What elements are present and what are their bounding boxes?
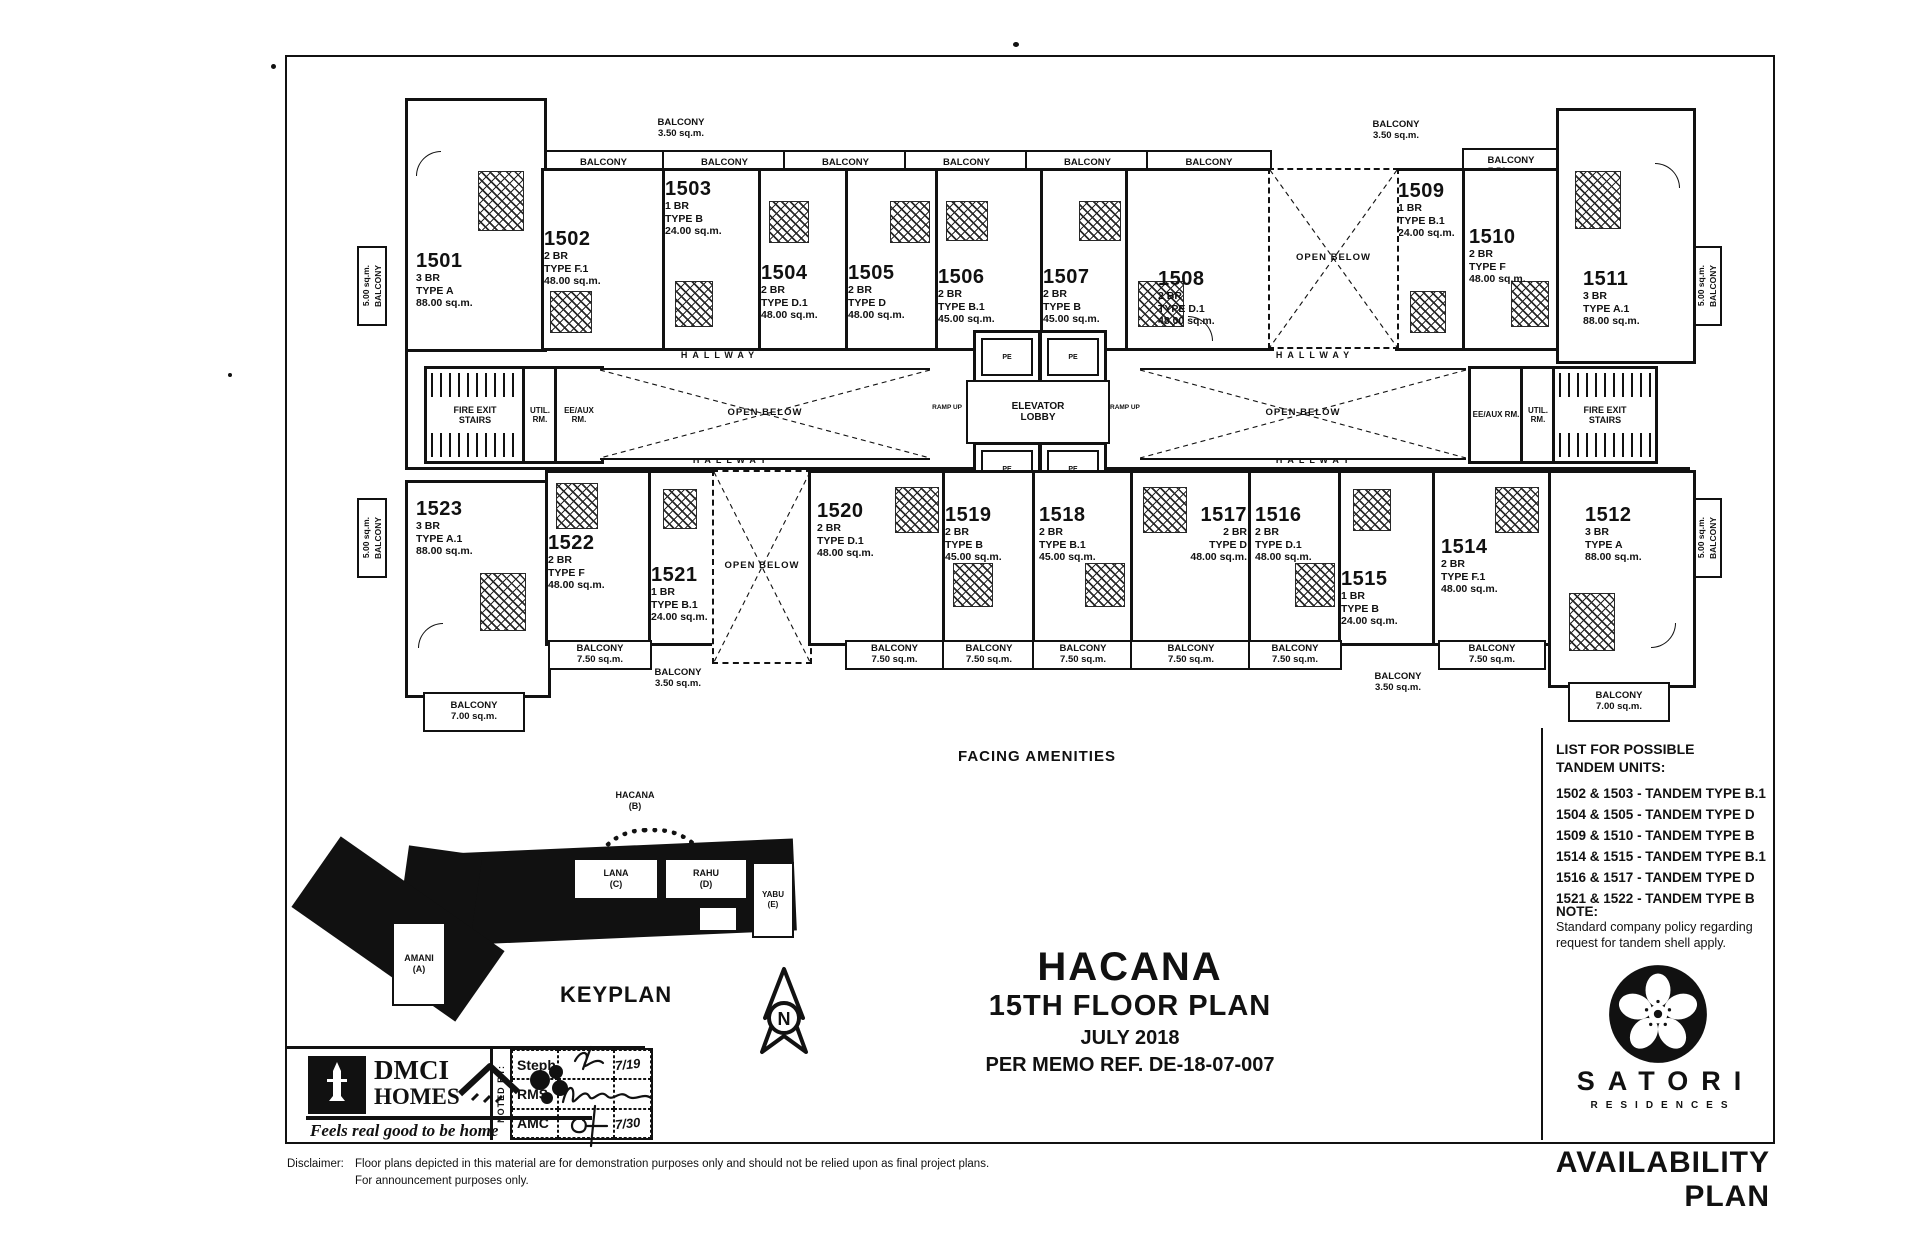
keyplan-building-lana: LANA (C)	[573, 858, 659, 900]
column-divider	[1541, 728, 1543, 1140]
unit-1518: 1518 2 BR TYPE B.1 45.00 sq.m.	[1032, 470, 1136, 646]
fixtures	[953, 563, 993, 607]
title-block: HACANA 15TH FLOOR PLAN JULY 2018 PER MEM…	[905, 946, 1355, 1079]
fixtures	[1511, 281, 1549, 327]
fixtures	[890, 201, 930, 243]
north-arrow-icon: N	[742, 966, 826, 1058]
unit-1521: 1521 1 BR TYPE B.1 24.00 sq.m.	[648, 470, 718, 646]
dmci-logo-mark	[308, 1056, 366, 1114]
note-block: NOTE: Standard company policy regarding …	[1556, 904, 1771, 952]
noted-by-table: Steph 7/19 RMS AMC 7/30	[510, 1048, 653, 1140]
door-arc	[418, 623, 443, 648]
stair-treads	[1559, 433, 1651, 457]
elevator-lobby: ELEVATOR LOBBY	[966, 380, 1110, 444]
tandem-list: LIST FOR POSSIBLE TANDEM UNITS: 1502 & 1…	[1556, 740, 1766, 910]
noted-by-signature	[558, 1050, 614, 1079]
west-wall	[405, 345, 408, 470]
tandem-item: 1504 & 1505 - TANDEM TYPE D	[1556, 805, 1766, 826]
keyplan-building-rahu: RAHU (D)	[664, 858, 748, 900]
tandem-heading: TANDEM UNITS:	[1556, 758, 1766, 776]
balcony-west: BALCONY5.00 sq.m.	[357, 246, 387, 326]
balcony-west: BALCONY5.00 sq.m.	[357, 498, 387, 578]
balcony-strip: BALCONY7.50 sq.m.	[1248, 640, 1342, 670]
fixtures	[1569, 593, 1615, 651]
fixtures	[550, 291, 592, 333]
scan-artifact-dot	[228, 373, 232, 377]
keyplan-building-amani: AMANI (A)	[392, 922, 446, 1006]
hallway-label: HALLWAY	[1255, 350, 1375, 360]
door-arc	[1651, 623, 1676, 648]
balcony-label: BALCONY3.50 sq.m.	[636, 666, 720, 692]
satori-flower-logo	[1606, 962, 1710, 1066]
fixtures	[675, 281, 713, 327]
door-arc	[416, 151, 441, 176]
tandem-item: 1514 & 1515 - TANDEM TYPE B.1	[1556, 847, 1766, 868]
open-below-corridor-west: OPEN BELOW	[600, 368, 930, 460]
fixtures	[946, 201, 988, 241]
balcony-1512: BALCONY7.00 sq.m.	[1568, 682, 1670, 722]
north-letter: N	[778, 1009, 791, 1029]
fixtures	[1079, 201, 1121, 241]
unit-1512: 1512 3 BR TYPE A 88.00 sq.m.	[1548, 470, 1696, 688]
balcony-east: BALCONY5.00 sq.m.	[1692, 246, 1722, 326]
fixtures	[1495, 487, 1539, 533]
balcony-strip: BALCONY7.50 sq.m.	[845, 640, 944, 670]
scanned-floor-plan-sheet: { "doc": { "availability": "AVAILABILITY…	[0, 0, 1920, 1255]
stair-treads	[431, 373, 519, 397]
unit-1510: 1510 2 BR TYPE F 48.00 sq.m.	[1462, 168, 1562, 351]
unit-1522: 1522 2 BR TYPE F 48.00 sq.m.	[545, 470, 654, 646]
elevator-shaft: PE	[1039, 330, 1107, 384]
unit-1516: 1516 2 BR TYPE D.1 48.00 sq.m.	[1248, 470, 1344, 646]
fixtures	[663, 489, 697, 529]
fixtures	[1295, 563, 1335, 607]
floor-title: 15TH FLOOR PLAN	[905, 988, 1355, 1024]
disclaimer-label: Disclaimer:	[287, 1156, 357, 1173]
unit-1502: 1502 2 BR TYPE F.1 48.00 sq.m.	[541, 168, 668, 351]
util-room-east: UTIL. RM.	[1520, 366, 1556, 464]
tandem-heading: LIST FOR POSSIBLE	[1556, 740, 1766, 758]
fixtures	[1410, 291, 1446, 333]
noted-by-label: NOTED BY:	[493, 1050, 509, 1138]
unit-1509: 1509 1 BR TYPE B.1 24.00 sq.m.	[1395, 168, 1468, 351]
fixtures	[769, 201, 809, 243]
fire-exit-stairs-west: FIRE EXIT STAIRS	[424, 366, 526, 464]
fire-exit-stairs-east: FIRE EXIT STAIRS	[1552, 366, 1658, 464]
balcony-1523: BALCONY7.00 sq.m.	[423, 692, 525, 732]
elevator-car: PE	[981, 338, 1033, 376]
balcony-label: BALCONY3.50 sq.m.	[1360, 116, 1432, 146]
ramp-up-label: RAMP UP	[912, 404, 962, 411]
balcony-east: BALCONY5.00 sq.m.	[1692, 498, 1722, 578]
balcony-strip: BALCONY7.50 sq.m.	[942, 640, 1036, 670]
open-below-area: OPEN BELOW	[1268, 168, 1399, 349]
open-below-corridor-east: OPEN BELOW	[1140, 368, 1466, 460]
fixtures	[1575, 171, 1621, 229]
noted-by-date: 7/30	[614, 1109, 651, 1138]
balcony-label: BALCONY3.50 sq.m.	[1356, 670, 1440, 696]
balcony-strip: BALCONY7.50 sq.m.	[1130, 640, 1252, 670]
unit-1511: 1511 3 BR TYPE A.1 88.00 sq.m.	[1556, 108, 1696, 364]
fixtures	[478, 171, 524, 231]
disclaimer-text: Floor plans depicted in this material ar…	[355, 1156, 1275, 1191]
elevator-car: PE	[1047, 338, 1099, 376]
unit-1514: 1514 2 BR TYPE F.1 48.00 sq.m.	[1432, 470, 1554, 646]
unit-1503: 1503 1 BR TYPE B 24.00 sq.m.	[662, 168, 764, 351]
tandem-item: 1509 & 1510 - TANDEM TYPE B	[1556, 826, 1766, 847]
balcony-strip: BALCONY7.50 sq.m.	[1438, 640, 1546, 670]
dmci-wordmark: HOMES	[374, 1086, 460, 1108]
noted-by-name: Steph	[512, 1050, 558, 1079]
hallway-label: HALLWAY	[660, 350, 780, 360]
open-below-area: OPEN BELOW	[712, 470, 812, 664]
unit-1520: 1520 2 BR TYPE D.1 48.00 sq.m.	[808, 470, 948, 646]
unit-1515: 1515 1 BR TYPE B 24.00 sq.m.	[1338, 470, 1438, 646]
stair-treads	[1559, 373, 1651, 397]
dmci-obelisk-icon	[308, 1056, 366, 1114]
keyplan-hacana-label: HACANA (B)	[592, 790, 678, 813]
plan-date: JULY 2018	[905, 1024, 1355, 1052]
unit-1517: 1517 2 BR TYPE D 48.00 sq.m.	[1130, 470, 1254, 646]
balcony-strip: BALCONY7.50 sq.m.	[1032, 640, 1134, 670]
unit-1508: 1508 2 BR TYPE D.1 48.00 sq.m.	[1125, 168, 1274, 351]
unit-1507: 1507 2 BR TYPE B 45.00 sq.m.	[1040, 168, 1131, 351]
dmci-wordmark: DMCI	[374, 1058, 449, 1084]
door-arc	[1655, 163, 1680, 188]
ee-aux-room-west: EE/AUX RM.	[554, 366, 604, 464]
unit-1505: 1505 2 BR TYPE D 48.00 sq.m.	[845, 168, 941, 351]
ee-aux-room-east: EE/AUX RM.	[1468, 366, 1524, 464]
noted-by-name: AMC	[512, 1109, 558, 1138]
tandem-item: 1502 & 1503 - TANDEM TYPE B.1	[1556, 784, 1766, 805]
scan-artifact-dot	[1013, 42, 1019, 47]
stair-treads	[431, 433, 519, 457]
unit-1506: 1506 2 BR TYPE B.1 45.00 sq.m.	[935, 168, 1046, 351]
fixtures	[1353, 489, 1391, 531]
memo-reference: PER MEMO REF. DE-18-07-007	[905, 1052, 1355, 1079]
tandem-item: 1516 & 1517 - TANDEM TYPE D	[1556, 868, 1766, 889]
keyplan-amenity-box	[698, 906, 738, 932]
keyplan-title: KEYPLAN	[560, 982, 672, 1008]
elevator-shaft: PE	[973, 330, 1041, 384]
dmci-tagline: Feels real good to be home	[310, 1121, 498, 1141]
fixtures	[556, 483, 598, 529]
facing-amenities-label: FACING AMENITIES	[958, 748, 1116, 765]
noted-by-name: RMS	[512, 1079, 558, 1108]
fixtures	[1085, 563, 1125, 607]
unit-1501: 1501 3 BR TYPE A 88.00 sq.m.	[405, 98, 547, 352]
availability-plan-label: AVAILABILITY PLAN	[1490, 1146, 1770, 1214]
noted-by-signature	[558, 1109, 614, 1138]
noted-by-date: 7/19	[614, 1050, 651, 1079]
keyplan-building-yabu: YABU (E)	[752, 862, 794, 938]
unit-1523: 1523 3 BR TYPE A.1 88.00 sq.m.	[405, 480, 551, 698]
unit-1519: 1519 2 BR TYPE B 45.00 sq.m.	[942, 470, 1038, 646]
project-title: HACANA	[905, 946, 1355, 988]
satori-wordmark: SATORI	[1546, 1066, 1772, 1097]
util-room-west: UTIL. RM.	[522, 366, 558, 464]
unit-1504: 1504 2 BR TYPE D.1 48.00 sq.m.	[758, 168, 851, 351]
note-label: NOTE:	[1556, 904, 1771, 919]
balcony-label: BALCONY3.50 sq.m.	[645, 114, 717, 144]
scan-artifact-dot	[271, 64, 276, 69]
fixtures	[480, 573, 526, 631]
residences-wordmark: RESIDENCES	[1546, 1100, 1772, 1111]
